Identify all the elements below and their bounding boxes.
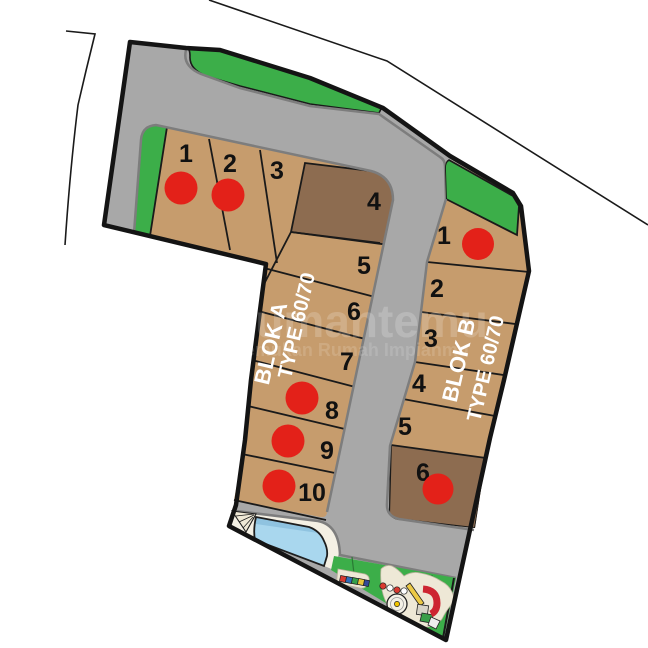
svg-text:2: 2: [430, 275, 444, 303]
svg-text:2: 2: [223, 150, 237, 178]
svg-text:4: 4: [367, 188, 381, 216]
svg-text:1: 1: [179, 140, 193, 168]
svg-text:9: 9: [320, 437, 334, 465]
svg-text:5: 5: [398, 413, 412, 441]
svg-text:8: 8: [325, 397, 339, 425]
svg-text:7: 7: [340, 348, 354, 376]
svg-text:5: 5: [357, 252, 371, 280]
svg-text:3: 3: [424, 325, 438, 353]
svg-text:1: 1: [437, 222, 451, 250]
svg-text:6: 6: [347, 298, 361, 326]
svg-text:4: 4: [412, 370, 426, 398]
svg-text:10: 10: [298, 479, 326, 507]
svg-text:3: 3: [270, 157, 284, 185]
